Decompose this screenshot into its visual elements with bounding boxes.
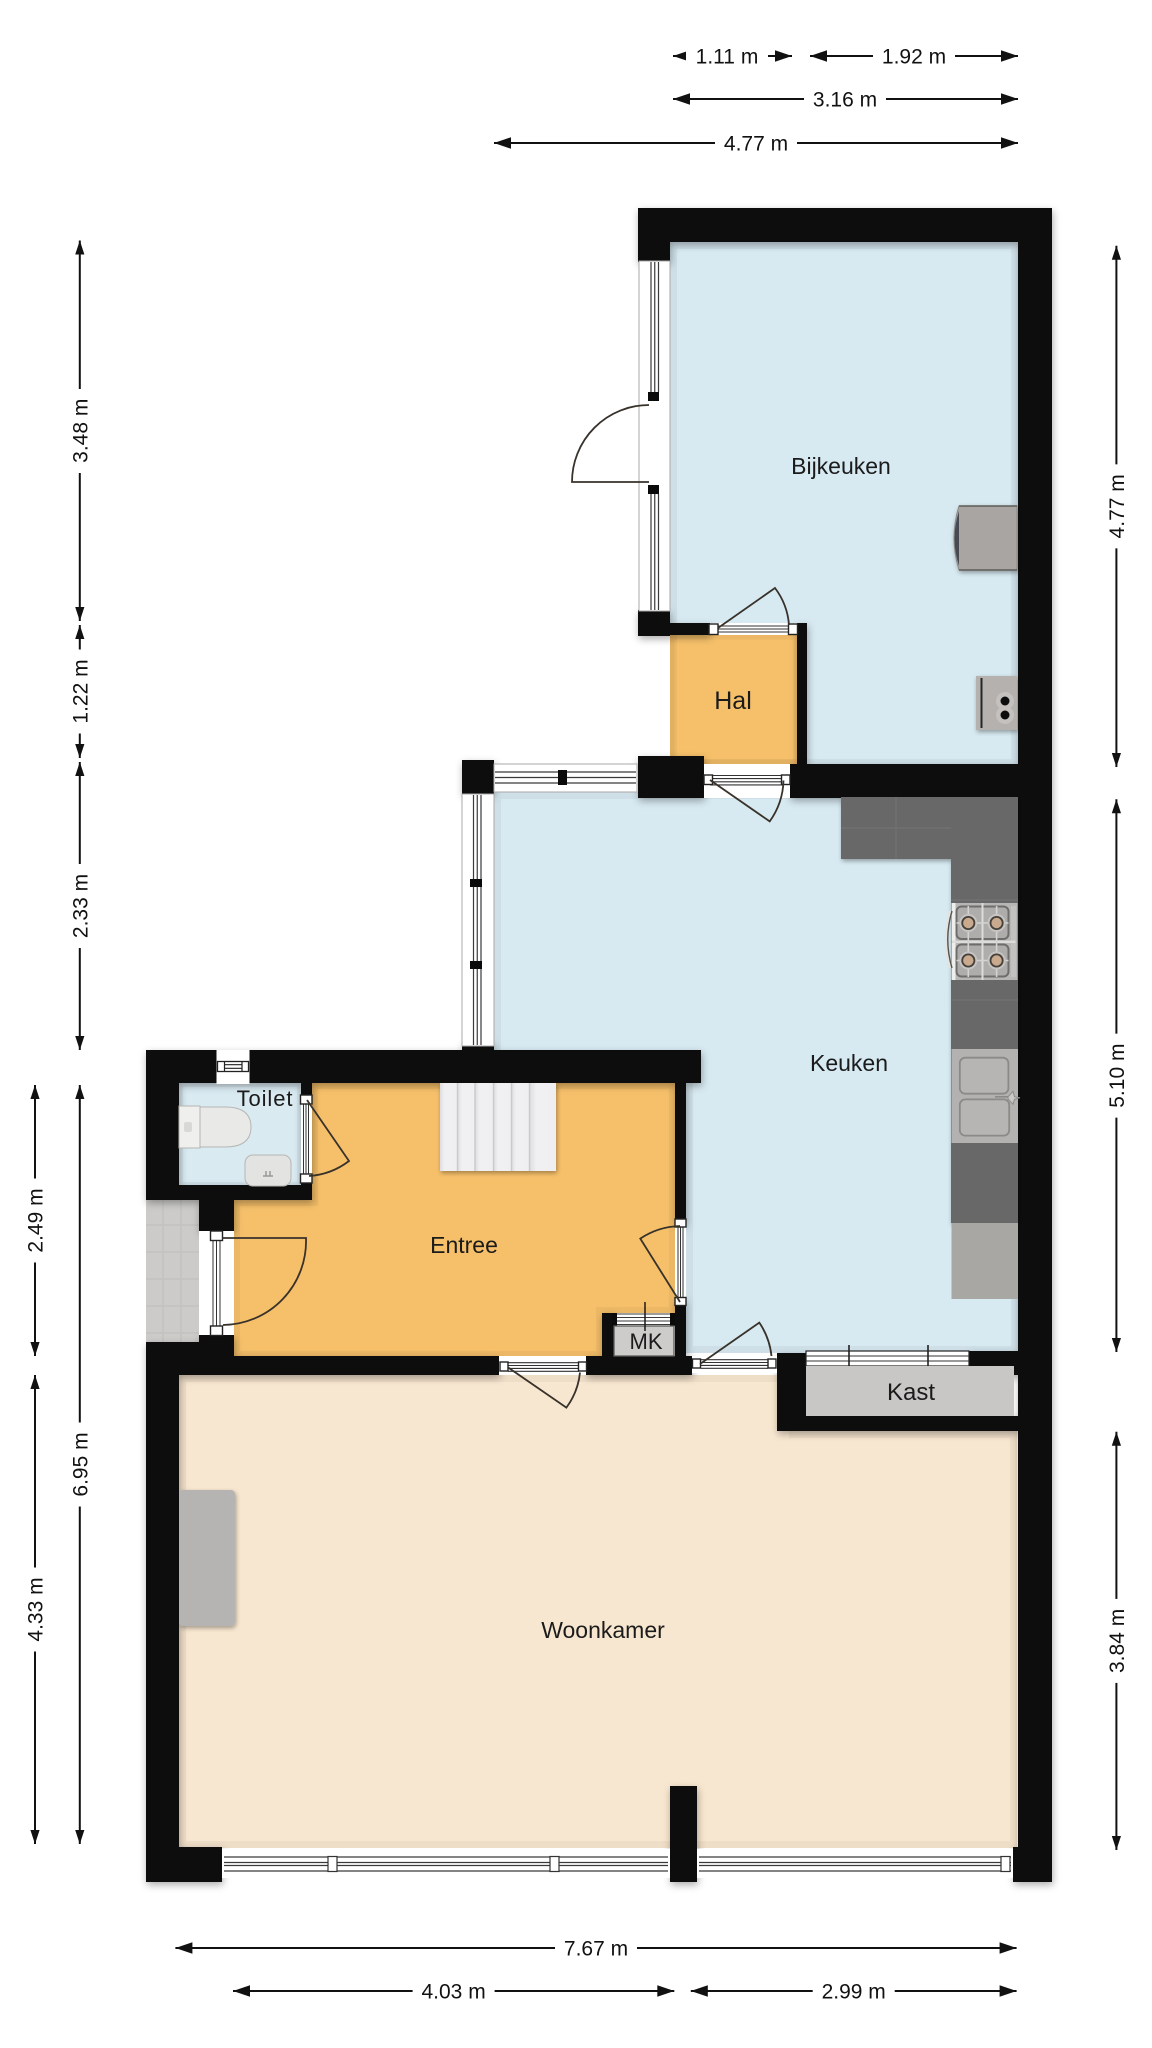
- svg-text:1.22 m: 1.22 m: [69, 659, 92, 723]
- svg-text:4.03 m: 4.03 m: [421, 1981, 485, 2004]
- svg-text:7.67 m: 7.67 m: [564, 1938, 628, 1961]
- svg-text:2.99 m: 2.99 m: [822, 1981, 886, 2004]
- svg-text:2.49 m: 2.49 m: [25, 1188, 48, 1252]
- svg-text:3.16 m: 3.16 m: [813, 89, 877, 112]
- svg-text:4.77 m: 4.77 m: [724, 133, 788, 156]
- svg-text:4.33 m: 4.33 m: [25, 1577, 48, 1641]
- svg-text:5.10 m: 5.10 m: [1106, 1044, 1129, 1108]
- svg-text:4.77 m: 4.77 m: [1106, 474, 1129, 538]
- svg-text:Hal: Hal: [714, 687, 752, 715]
- svg-text:3.84 m: 3.84 m: [1106, 1609, 1129, 1673]
- svg-text:Entree: Entree: [430, 1232, 498, 1258]
- svg-text:MK: MK: [630, 1329, 663, 1354]
- svg-text:1.11 m: 1.11 m: [696, 46, 759, 69]
- svg-text:1.92 m: 1.92 m: [882, 46, 946, 69]
- svg-text:6.95 m: 6.95 m: [69, 1432, 92, 1496]
- svg-text:3.48 m: 3.48 m: [69, 399, 92, 463]
- svg-text:Keuken: Keuken: [810, 1050, 888, 1076]
- svg-text:Toilet: Toilet: [237, 1086, 294, 1111]
- svg-text:2.33 m: 2.33 m: [69, 874, 92, 938]
- svg-text:Bijkeuken: Bijkeuken: [791, 453, 891, 479]
- svg-text:Woonkamer: Woonkamer: [541, 1617, 665, 1643]
- svg-text:Kast: Kast: [887, 1379, 935, 1406]
